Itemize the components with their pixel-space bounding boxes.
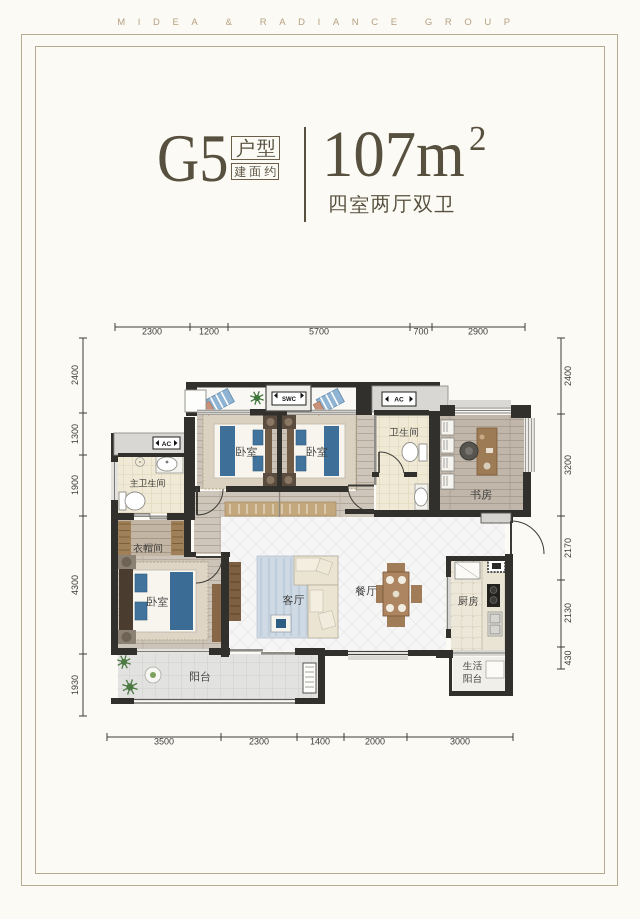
svg-text:AC: AC — [394, 397, 404, 404]
svg-text:3500: 3500 — [154, 737, 174, 747]
svg-text:1300: 1300 — [70, 424, 80, 444]
svg-text:3200: 3200 — [563, 455, 573, 475]
svg-text:5700: 5700 — [309, 327, 329, 337]
svg-text:2400: 2400 — [70, 365, 80, 385]
svg-text:3000: 3000 — [450, 737, 470, 747]
svg-text:1200: 1200 — [199, 327, 219, 337]
svg-text:2300: 2300 — [249, 737, 269, 747]
svg-text:1900: 1900 — [70, 475, 80, 495]
svg-text:700: 700 — [413, 327, 428, 337]
svg-text:2400: 2400 — [563, 366, 573, 386]
svg-text:SWC: SWC — [282, 397, 297, 403]
svg-text:2300: 2300 — [142, 327, 162, 337]
svg-text:1400: 1400 — [310, 737, 330, 747]
svg-text:2000: 2000 — [365, 737, 385, 747]
svg-text:2900: 2900 — [468, 327, 488, 337]
svg-text:2170: 2170 — [563, 538, 573, 558]
svg-text:1930: 1930 — [70, 675, 80, 695]
svg-text:4300: 4300 — [70, 575, 80, 595]
svg-text:2130: 2130 — [563, 603, 573, 623]
svg-text:AC: AC — [162, 441, 172, 448]
svg-text:430: 430 — [563, 650, 573, 665]
